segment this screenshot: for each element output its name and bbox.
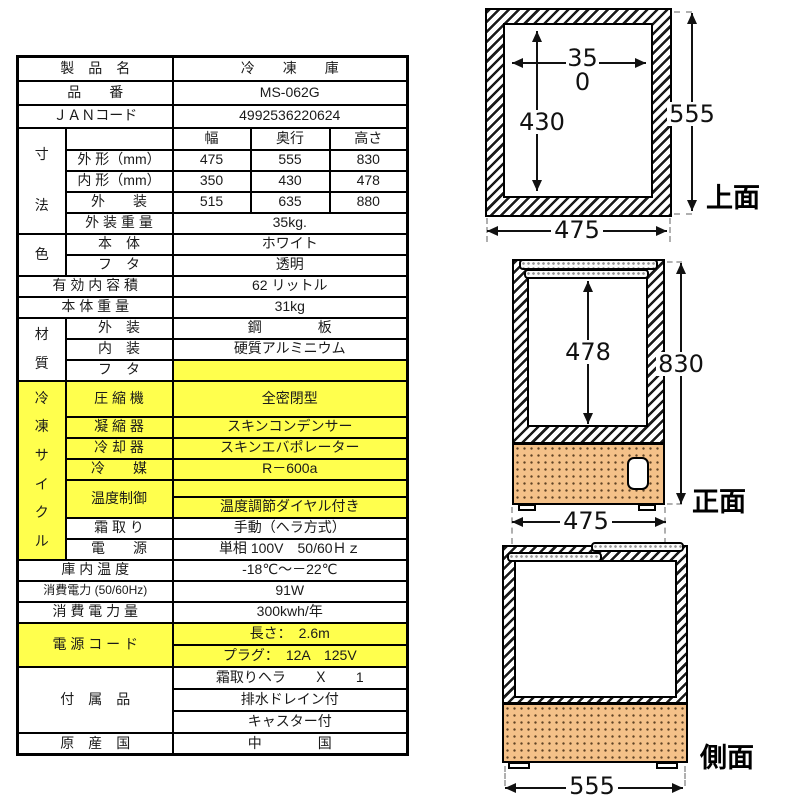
- compressor-label: 圧 縮 機: [66, 381, 173, 417]
- side-view-machine-compartment: [502, 703, 688, 763]
- top-view-extension-line: [669, 218, 671, 242]
- jan-code-label: ＪＡＮコード: [18, 105, 173, 128]
- outer-dim-label: 外 形（mm）: [66, 150, 173, 171]
- temp-control-label: 温度制御: [66, 480, 173, 518]
- accessory-scraper: 霜取りヘラ Ｘ 1: [173, 667, 408, 689]
- power-value: 単相 100V 50/60Ｈｚ: [173, 539, 408, 560]
- row-annual-energy: 消 費 電 力 量 300kwh/年: [18, 602, 408, 623]
- color-body-value: ホワイト: [173, 234, 408, 255]
- outer-dim-width: 475: [173, 150, 251, 171]
- side-view-lid-front: [507, 552, 602, 562]
- dimensions-group-header: 寸 法: [18, 128, 66, 234]
- compressor-value: 全密閉型: [173, 381, 408, 417]
- top-view-outer-depth-label: 555: [667, 102, 717, 126]
- material-exterior-label: 外 装: [66, 318, 173, 339]
- material-group-char: 材: [35, 327, 49, 342]
- row-material-exterior: 材 質 外 装 鋼 板: [18, 318, 408, 339]
- condenser-value: スキンコンデンサー: [173, 417, 408, 438]
- dimensions-group-char: 寸: [35, 147, 49, 162]
- defrost-value: 手動（ヘラ方式）: [173, 518, 408, 539]
- side-view-foot-left: [508, 762, 530, 769]
- row-dimension-header: 寸 法 幅 奥行 高さ: [18, 128, 408, 150]
- capacity-value: 62 リットル: [173, 276, 408, 297]
- inner-dim-label: 内 形（mm）: [66, 171, 173, 192]
- packaged-weight-value: 35kg.: [173, 213, 408, 234]
- front-view-label: 正面: [692, 480, 746, 519]
- temp-control-value: 温度調節ダイヤル付き: [173, 497, 408, 518]
- product-name-label: 製 品 名: [18, 57, 173, 81]
- spec-table: 製 品 名 冷 凍 庫 品 番 MS-062G ＪＡＮコード 499253622…: [16, 55, 409, 756]
- top-view-outer-width-label: 475: [551, 218, 603, 242]
- front-view-foot-right: [638, 504, 656, 511]
- front-view-inner-height-label: 478: [563, 340, 613, 364]
- condenser-label: 凝 縮 器: [66, 417, 173, 438]
- material-interior-value: 硬質アルミニウム: [173, 339, 408, 360]
- inside-temperature-value: -18℃～－22℃: [173, 560, 408, 581]
- model-number-label: 品 番: [18, 81, 173, 105]
- row-color-lid: フ タ 透明: [18, 255, 408, 276]
- outer-dim-depth: 555: [251, 150, 330, 171]
- row-capacity: 有 効 内 容 積 62 リットル: [18, 276, 408, 297]
- material-interior-label: 内 装: [66, 339, 173, 360]
- temp-control-blank: [173, 480, 408, 497]
- row-cord-length: 電 源 コ ー ド 長さ： 2.6m: [18, 623, 408, 645]
- row-outer-dimensions: 外 形（mm） 475 555 830: [18, 150, 408, 171]
- inside-temperature-label: 庫 内 温 度: [18, 560, 173, 581]
- row-jan-code: ＪＡＮコード 4992536220624: [18, 105, 408, 128]
- front-view-outer-height-arrow: [680, 263, 682, 504]
- power-consumption-label: 消費電力 (50/60Hz): [18, 581, 173, 602]
- material-exterior-value: 鋼 板: [173, 318, 408, 339]
- power-cord-length: 長さ： 2.6m: [173, 623, 408, 645]
- dimensions-group-char: 法: [35, 198, 49, 213]
- row-product-name: 製 品 名 冷 凍 庫: [18, 57, 408, 81]
- col-header-width: 幅: [173, 128, 251, 150]
- refrigerant-value: R－600a: [173, 459, 408, 480]
- row-inner-dimensions: 内 形（mm） 350 430 478: [18, 171, 408, 192]
- row-temp-control-top: 温度制御: [18, 480, 408, 497]
- row-inside-temperature: 庫 内 温 度 -18℃～－22℃: [18, 560, 408, 581]
- side-view-depth-label: 555: [566, 774, 618, 798]
- cycle-group-char: ク: [35, 505, 49, 520]
- row-material-lid: フ タ: [18, 360, 408, 381]
- row-defrost: 霜 取 り 手動（ヘラ方式）: [18, 518, 408, 539]
- row-compressor: 冷 凍 サ イ ク ル 圧 縮 機 全密閉型: [18, 381, 408, 417]
- row-color-body: 色 本 体 ホワイト: [18, 234, 408, 255]
- packaged-dim-height: 880: [330, 192, 408, 213]
- side-view-extension-line: [684, 766, 686, 786]
- row-power: 電 源 単相 100V 50/60Ｈｚ: [18, 539, 408, 560]
- body-weight-value: 31kg: [173, 297, 408, 318]
- power-cord-label: 電 源 コ ー ド: [18, 623, 173, 667]
- front-view-width-label: 475: [560, 509, 612, 533]
- power-cord-plug: プラグ： 12A 125V: [173, 645, 408, 667]
- row-evaporator: 冷 却 器 スキンエバポレーター: [18, 438, 408, 459]
- front-view-lid-inner: [524, 269, 649, 279]
- accessory-casters: キャスター付: [173, 711, 408, 733]
- color-lid-value: 透明: [173, 255, 408, 276]
- dimension-header-blank: [66, 128, 173, 150]
- front-view-foot-left: [518, 504, 536, 511]
- accessories-label: 付 属 品: [18, 667, 173, 733]
- cycle-group-char: サ: [35, 448, 49, 463]
- packaged-dim-width: 515: [173, 192, 251, 213]
- row-origin: 原 産 国 中 国: [18, 733, 408, 755]
- color-body-label: 本 体: [66, 234, 173, 255]
- power-label: 電 源: [66, 539, 173, 560]
- front-view-outer-height-label: 830: [656, 352, 706, 376]
- top-view-extension-line: [674, 213, 692, 215]
- material-group-char: 質: [35, 356, 49, 371]
- material-lid-label: フ タ: [66, 360, 173, 381]
- side-view-inner-cavity: [514, 560, 677, 698]
- inner-dim-height: 478: [330, 171, 408, 192]
- evaporator-label: 冷 却 器: [66, 438, 173, 459]
- origin-value: 中 国: [173, 733, 408, 755]
- packaged-dim-label: 外 装: [66, 192, 173, 213]
- material-group-header: 材 質: [18, 318, 66, 381]
- inner-dim-depth: 430: [251, 171, 330, 192]
- col-header-depth: 奥行: [251, 128, 330, 150]
- packaged-dim-depth: 635: [251, 192, 330, 213]
- capacity-label: 有 効 内 容 積: [18, 276, 173, 297]
- packaged-weight-label: 外 装 重 量: [66, 213, 173, 234]
- accessory-drain: 排水ドレイン付: [173, 689, 408, 711]
- row-condenser: 凝 縮 器 スキンコンデンサー: [18, 417, 408, 438]
- model-number-value: MS-062G: [173, 81, 408, 105]
- body-weight-label: 本 体 重 量: [18, 297, 173, 318]
- cycle-group-char: ル: [35, 534, 49, 549]
- col-header-height: 高さ: [330, 128, 408, 150]
- cycle-group-char: 凍: [35, 419, 49, 434]
- row-model-number: 品 番 MS-062G: [18, 81, 408, 105]
- origin-label: 原 産 国: [18, 733, 173, 755]
- side-view-foot-right: [656, 762, 678, 769]
- inner-dim-width: 350: [173, 171, 251, 192]
- outer-dim-height: 830: [330, 150, 408, 171]
- top-view-label: 上面: [706, 176, 760, 215]
- cycle-group-char: イ: [35, 477, 49, 492]
- product-name-value: 冷 凍 庫: [173, 57, 408, 81]
- side-view-label: 側面: [700, 736, 754, 775]
- row-accessory-1: 付 属 品 霜取りヘラ Ｘ 1: [18, 667, 408, 689]
- row-packaged-weight: 外 装 重 量 35kg.: [18, 213, 408, 234]
- front-view-vent: [627, 457, 649, 490]
- top-view-inner-width-label: 350: [566, 46, 599, 95]
- row-power-consumption: 消費電力 (50/60Hz) 91W: [18, 581, 408, 602]
- evaporator-value: スキンエバポレーター: [173, 438, 408, 459]
- material-lid-value: [173, 360, 408, 381]
- cycle-group-char: 冷: [35, 391, 49, 406]
- annual-energy-value: 300kwh/年: [173, 602, 408, 623]
- color-lid-label: フ タ: [66, 255, 173, 276]
- row-body-weight: 本 体 重 量 31kg: [18, 297, 408, 318]
- annual-energy-label: 消 費 電 力 量: [18, 602, 173, 623]
- row-packaged-dimensions: 外 装 515 635 880: [18, 192, 408, 213]
- color-group-header: 色: [18, 234, 66, 276]
- row-refrigerant: 冷 媒 R－600a: [18, 459, 408, 480]
- power-consumption-value: 91W: [173, 581, 408, 602]
- row-material-interior: 内 装 硬質アルミニウム: [18, 339, 408, 360]
- spec-sheet: { "colors": { "highlight_yellow": "#ffff…: [0, 0, 800, 800]
- top-view-inner-depth-label: 430: [517, 110, 567, 134]
- jan-code-value: 4992536220624: [173, 105, 408, 128]
- refrigerant-label: 冷 媒: [66, 459, 173, 480]
- refrigeration-cycle-group-header: 冷 凍 サ イ ク ル: [18, 381, 66, 560]
- defrost-label: 霜 取 り: [66, 518, 173, 539]
- side-view-lid-rear: [591, 542, 684, 552]
